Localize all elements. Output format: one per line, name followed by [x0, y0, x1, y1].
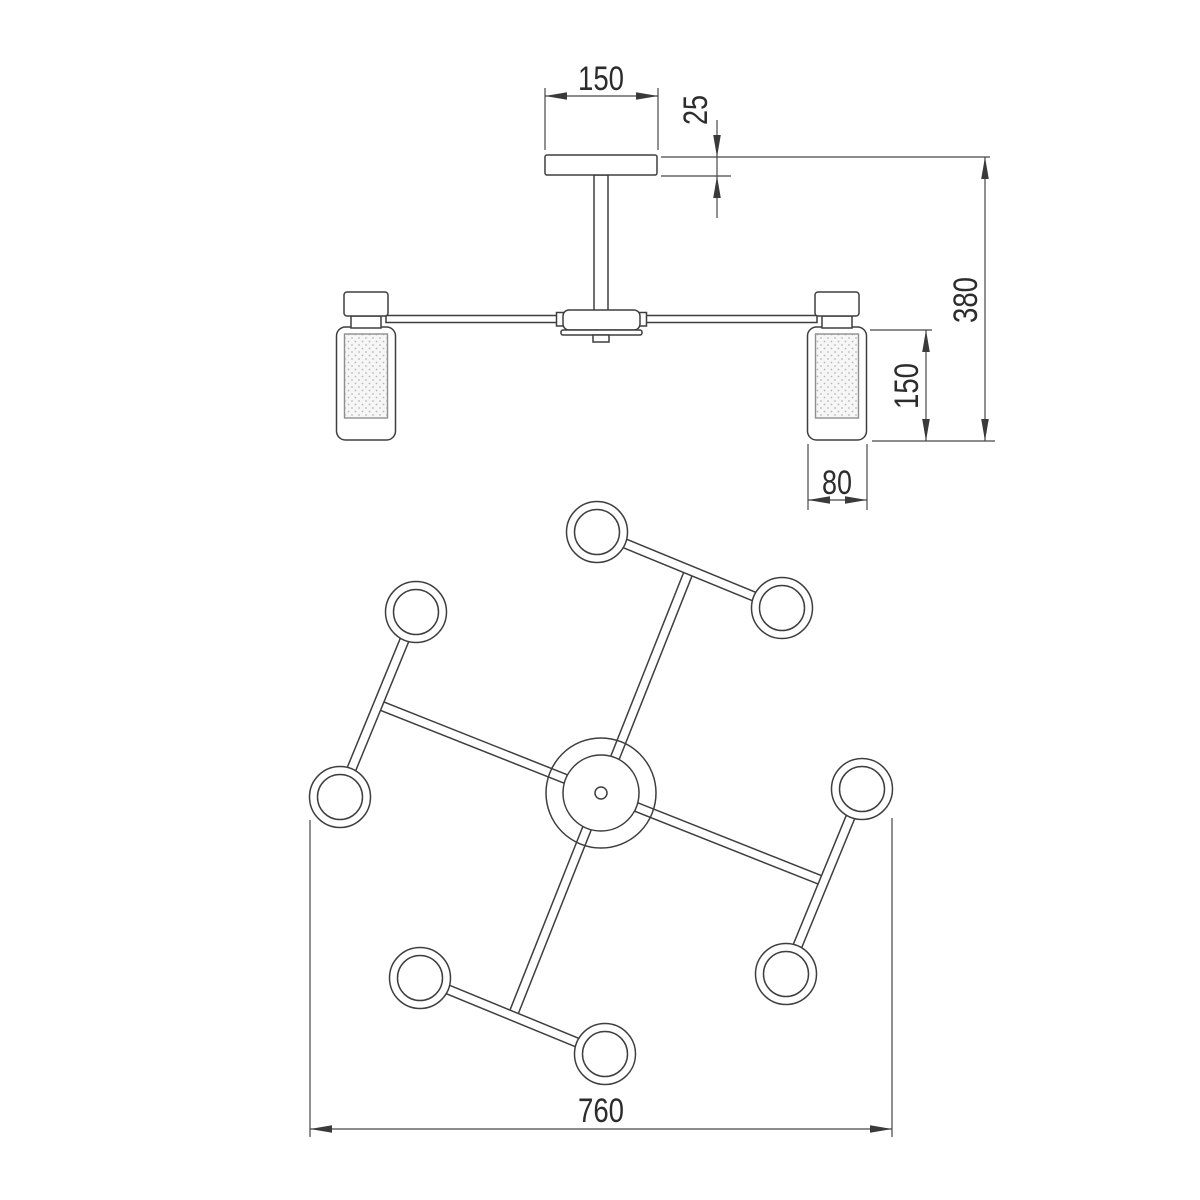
- arrowhead-right: [870, 1125, 892, 1133]
- dim-label-overall-diameter: 760: [578, 1092, 624, 1130]
- technical-drawing-canvas: 150 25 380 150: [0, 0, 1200, 1200]
- left-lamp: [337, 292, 396, 440]
- arrowhead-up: [981, 157, 989, 179]
- plan-view: [310, 502, 893, 1085]
- arrowhead-up: [922, 330, 930, 352]
- right-arm-bar: [643, 316, 817, 323]
- right-lamp: [808, 292, 867, 440]
- plan-arm-left: [310, 582, 568, 828]
- dim-label-shade-diameter: 80: [822, 464, 852, 502]
- lamp-neck: [351, 316, 381, 328]
- dim-canopy-thickness: 25: [661, 95, 990, 218]
- dim-label-shade-height: 150: [888, 363, 926, 409]
- arrowhead-down: [713, 135, 721, 157]
- side-view: [337, 155, 867, 440]
- mounting-stem: [594, 175, 608, 312]
- lamp-diffuser: [345, 334, 388, 418]
- lamp-socket: [344, 292, 388, 316]
- arrowhead-down: [981, 419, 989, 441]
- dim-shade-diameter: 80: [808, 444, 867, 510]
- dim-label-overall-height: 380: [947, 277, 985, 323]
- plan-arm-bottom: [390, 827, 636, 1085]
- central-hub-tab: [593, 335, 609, 342]
- hub-inner-circle: [563, 755, 639, 831]
- dim-canopy-width: 150: [545, 60, 658, 150]
- plan-arm-right: [635, 759, 893, 1005]
- plan-arm-top: [567, 502, 813, 760]
- side-view-dimensions: 150 25 380 150: [545, 60, 995, 510]
- lamp-neck: [822, 316, 852, 328]
- arrowhead-left: [545, 92, 567, 100]
- arrowhead-down: [922, 419, 930, 441]
- arrowhead-up: [713, 176, 721, 198]
- central-hub-body: [563, 310, 640, 330]
- arrowhead-right: [636, 92, 658, 100]
- dim-label-canopy-thickness: 25: [677, 95, 715, 125]
- ceiling-canopy: [545, 155, 657, 175]
- left-arm-bar: [386, 316, 560, 323]
- lamp-diffuser: [816, 334, 859, 418]
- dim-shade-height: 150: [870, 330, 932, 441]
- dim-label-canopy-width: 150: [578, 60, 624, 98]
- lamp-socket: [815, 292, 859, 316]
- arrowhead-left: [310, 1125, 332, 1133]
